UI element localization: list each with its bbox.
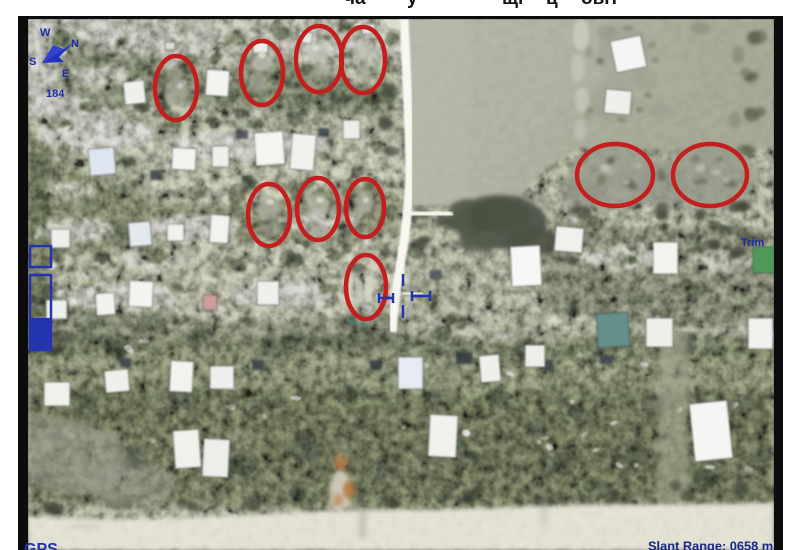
svg-text:ц: ц xyxy=(546,0,558,9)
svg-text:ча: ча xyxy=(344,0,366,9)
svg-text:184: 184 xyxy=(46,88,65,100)
svg-text:овіт: овіт xyxy=(581,0,619,9)
svg-text:щі: щі xyxy=(502,0,523,9)
svg-text:W: W xyxy=(40,27,51,39)
svg-text:у: у xyxy=(407,0,418,9)
svg-text:E: E xyxy=(62,68,69,80)
svg-text:Trim: Trim xyxy=(741,237,764,249)
svg-text:S: S xyxy=(29,56,36,68)
svg-text:Slant Range: 0658 m: Slant Range: 0658 m xyxy=(648,539,773,550)
svg-text:GPS: GPS xyxy=(24,541,58,550)
svg-text:N: N xyxy=(71,38,79,50)
